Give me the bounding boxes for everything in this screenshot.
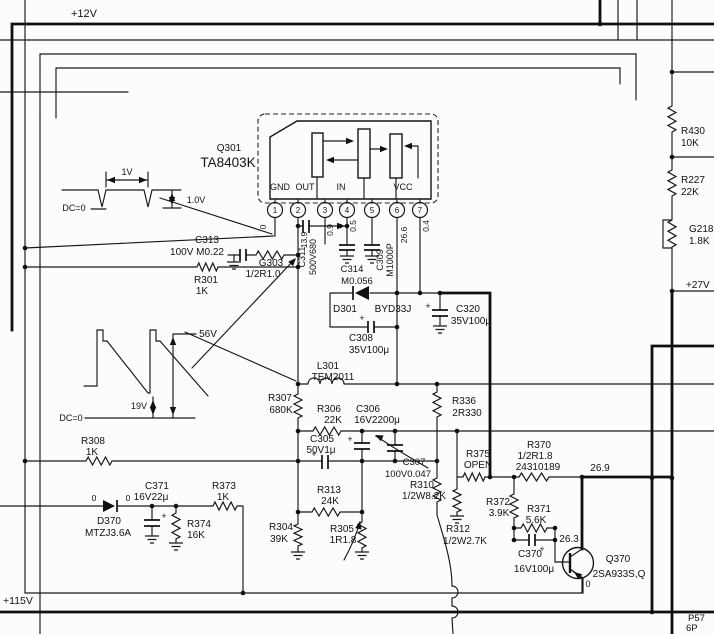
d301-ref: D301 [333, 304, 357, 315]
junction-dot [241, 591, 246, 596]
pin-4: 4 [345, 206, 350, 215]
d370-ref: D370 [97, 516, 121, 527]
r312-val: 1/2W2.7K [443, 536, 487, 547]
junction-dot [395, 325, 400, 330]
c306-ref: C306 [356, 404, 380, 415]
wf2-baseline: DC=0 [59, 413, 82, 423]
r310-ref: R310 [410, 480, 434, 491]
c305-ref: C305 [310, 434, 334, 445]
q370-part: 2SA933S,Q [593, 569, 646, 580]
r375-val: OPEN [464, 460, 492, 471]
c371-ref: C371 [145, 481, 169, 492]
wf1-baseline: DC=0 [62, 203, 85, 213]
c370-plus: + [539, 544, 544, 554]
ic-part: TA8403K [200, 155, 255, 170]
r308-val: 1K [86, 447, 99, 458]
l301-ref: L301 [317, 361, 340, 372]
r371-val: 5.6K [526, 515, 547, 526]
junction-dot [418, 291, 423, 296]
resistor-r313-symbol [312, 508, 340, 516]
junction-dot [360, 429, 365, 434]
c311-ref: C311 [297, 247, 307, 268]
pin-6: 6 [395, 206, 400, 215]
resistor-r312-symbol [453, 489, 461, 512]
r307-ref: R307 [268, 393, 292, 404]
wf1-period: 1V [121, 167, 132, 177]
c311-val: 500V680 [308, 239, 318, 275]
c308-ref: C308 [349, 333, 373, 344]
resistor-r336-symbol [433, 392, 441, 417]
tv-d370-anode: 0 [92, 493, 97, 503]
r306-ref: R306 [317, 404, 341, 415]
r313-val: 24K [321, 496, 339, 507]
junction-dot [393, 459, 398, 464]
r305-ref: R305 [330, 524, 354, 535]
wf2-peak: 56V [199, 329, 217, 340]
wf2-level: 19V [131, 401, 147, 411]
junction-dot [438, 291, 443, 296]
r372-ref: R372 [486, 497, 510, 508]
junction-dot [553, 538, 558, 543]
pin6-voltage: 26.6 [399, 226, 409, 243]
junction-dot [455, 429, 460, 434]
pin4-voltage: 0.5 [348, 220, 358, 232]
arrowhead [170, 407, 176, 415]
r372-val: 3.9K [489, 508, 510, 519]
ground-r312 [450, 516, 464, 523]
c306-val: 16V2200μ [354, 415, 400, 426]
resistor-r370-symbol [519, 473, 549, 481]
resistor-r307-symbol [294, 394, 302, 418]
q370-ref: Q370 [606, 554, 631, 565]
ic-inner-block-1 [312, 133, 323, 177]
schematic-labels: +12V+115V+27VP576PQ301TA8403KGNDOUTINVCC… [3, 8, 714, 634]
junction-dot [296, 382, 301, 387]
c370-val: 16V100μ [514, 564, 554, 575]
arrowhead [346, 138, 354, 144]
diode-d301 [353, 286, 369, 300]
resistor-r372-symbol [510, 494, 518, 518]
junction-dot [435, 459, 440, 464]
c371-plus: + [161, 511, 166, 521]
resistor-r430-symbol [668, 106, 676, 132]
junction-dot [580, 475, 585, 480]
ic-pad-out: OUT [296, 182, 316, 192]
junction-dot [488, 475, 493, 480]
pin7-voltage: 0.4 [421, 220, 431, 232]
arrowhead [139, 177, 147, 183]
junction-dot [435, 382, 440, 387]
r301-val: 1K [196, 286, 209, 297]
ground-c320 [433, 326, 447, 333]
ic-pad-vcc: VCC [393, 182, 413, 192]
resistor-r301-symbol [197, 263, 218, 271]
junction-dot [296, 429, 301, 434]
c308-val: 35V100μ [349, 345, 389, 356]
c308-plus: + [359, 313, 364, 323]
tv-q370-emitter: 0 [585, 579, 590, 589]
r307-val: 680K [269, 405, 293, 416]
arrowhead [150, 407, 156, 415]
junction-dot [174, 504, 179, 509]
r301-ref: R301 [194, 275, 218, 286]
c320-val: 35V100μ [451, 316, 491, 327]
r227-ref: R227 [681, 175, 705, 186]
ground-c371 [145, 536, 159, 543]
g303-val: 1/2R1.0 [245, 269, 280, 280]
ic-pad-gnd: GND [270, 182, 291, 192]
junction-dot [670, 289, 675, 294]
pin-1: 1 [273, 206, 278, 215]
junction-dot [395, 382, 400, 387]
r430-ref: R430 [681, 126, 705, 137]
arrowhead [404, 143, 412, 149]
arrowhead [326, 157, 334, 163]
junction-dot [296, 224, 301, 229]
junction-dot [360, 459, 365, 464]
net-plus12v: +12V [71, 8, 98, 20]
c313-val: 100V M0.22 [170, 247, 224, 258]
junction-dot [512, 526, 517, 531]
junction-dot [23, 246, 28, 251]
junction-dot [150, 504, 155, 509]
r374-val: 16K [187, 530, 205, 541]
r374-ref: R374 [187, 519, 211, 530]
c314-val: M0.056 [341, 276, 373, 287]
c306-plus: + [347, 434, 352, 444]
arrowhead [107, 177, 115, 183]
r227-val: 22K [681, 187, 699, 198]
ground-r305 [355, 552, 369, 559]
ic-inner-block-3 [390, 134, 402, 178]
ground-c314 [340, 256, 354, 263]
junction-dot [395, 291, 400, 296]
wire-r336-r310-feed [437, 384, 458, 634]
junction-dot [393, 429, 398, 434]
pin1-voltage: 0 [258, 224, 268, 229]
r375-ref: R375 [466, 449, 490, 460]
r336-ref: R336 [452, 396, 476, 407]
tv-d370-cathode: 0 [126, 493, 131, 503]
pin-7: 7 [418, 206, 423, 215]
r305-val: 1R1.8 [330, 535, 357, 546]
c307-ref: C307 [403, 457, 426, 468]
ground-r304 [291, 552, 305, 559]
c371-val: 16V22μ [134, 492, 169, 503]
pin-2: 2 [296, 206, 301, 215]
g303-ref: G303 [259, 258, 284, 269]
net-plus115v: +115V [3, 595, 33, 607]
ground-r374 [169, 543, 183, 550]
r306-val: 22K [324, 415, 342, 426]
junction-dot [296, 459, 301, 464]
r304-val: 39K [270, 534, 288, 545]
d370-val: MTZJ3.6A [85, 528, 131, 539]
resistor-r304-symbol [294, 524, 302, 546]
c309-ref: C309 [375, 249, 385, 271]
ic-ref: Q301 [217, 143, 242, 154]
junction-dot [296, 510, 301, 515]
tv-r370-out: 26.9 [590, 463, 610, 474]
r336-val: 2R330 [452, 408, 482, 419]
r312-ref: R312 [446, 524, 470, 535]
ground-symbols [145, 256, 464, 559]
resistor-g218-symbol [668, 220, 676, 247]
c313-ref: C313 [195, 235, 219, 246]
waveform-callout-lines [160, 198, 296, 381]
tv-q370-base: 26.3 [559, 534, 579, 545]
junction-dot [670, 155, 675, 160]
junction-dot [553, 526, 558, 531]
d301-val: BYD33J [375, 304, 412, 315]
junction-dot [23, 459, 28, 464]
junction-dot [512, 475, 517, 480]
g218-ref: G218 [689, 224, 714, 235]
r373-val: 1K [217, 492, 230, 503]
schematic-page: +12V+115V+27VP576PQ301TA8403KGNDOUTINVCC… [0, 0, 714, 634]
resistor-r373-symbol [213, 502, 237, 510]
c309-val: M1000P [385, 243, 395, 277]
ic-inner-block-2 [358, 129, 370, 178]
junction-dot [670, 476, 675, 481]
arrowhead [337, 223, 345, 229]
resistor-r374-symbol [172, 513, 180, 539]
r373-ref: R373 [212, 481, 236, 492]
g218-val: 1.8K [689, 236, 710, 247]
arrowhead [170, 337, 176, 345]
diode-d370 [103, 500, 117, 512]
r304-ref: R304 [269, 522, 293, 533]
resistor-r375-symbol [463, 473, 485, 481]
schematic-canvas: +12V+115V+27VP576PQ301TA8403KGNDOUTINVCC… [0, 0, 714, 634]
wf1-amplitude: 1.0V [187, 195, 206, 205]
c307-val: 100V0.047 [385, 469, 431, 480]
c305-plus: + [311, 449, 316, 459]
connector-6p: 6P [686, 623, 698, 634]
l301-val: TEM2011 [312, 372, 355, 383]
c320-ref: C320 [456, 304, 480, 315]
r370-val: 1/2R1.8 [517, 451, 552, 462]
arrowhead [380, 146, 388, 152]
junction-dot [650, 610, 655, 615]
ground-c313 [227, 262, 241, 269]
resistor-r308-symbol [86, 457, 112, 465]
c320-plus: + [425, 301, 430, 311]
r371-ref: R371 [527, 504, 551, 515]
r308-ref: R308 [81, 436, 105, 447]
r430-val: 10K [681, 138, 699, 149]
r370-code: 24310189 [516, 462, 561, 473]
r370-ref: R370 [527, 440, 551, 451]
arrowhead [150, 400, 156, 408]
junction-dot [650, 476, 655, 481]
junction-dot [360, 510, 365, 515]
pin-5: 5 [370, 206, 375, 215]
pin3-voltage: 0.9 [325, 224, 335, 236]
net-plus27v: +27V [686, 280, 710, 291]
pin-3: 3 [323, 206, 328, 215]
junction-dot [23, 265, 28, 270]
r313-ref: R313 [317, 485, 341, 496]
c314-ref: C314 [341, 264, 364, 275]
junction-dot [598, 22, 603, 27]
junction-dot [512, 538, 517, 543]
ic-pad-in: IN [337, 182, 346, 192]
junction-dot [670, 70, 675, 75]
r310-val: 1/2W8.2K [402, 491, 446, 502]
resistor-r227-symbol [668, 170, 676, 196]
